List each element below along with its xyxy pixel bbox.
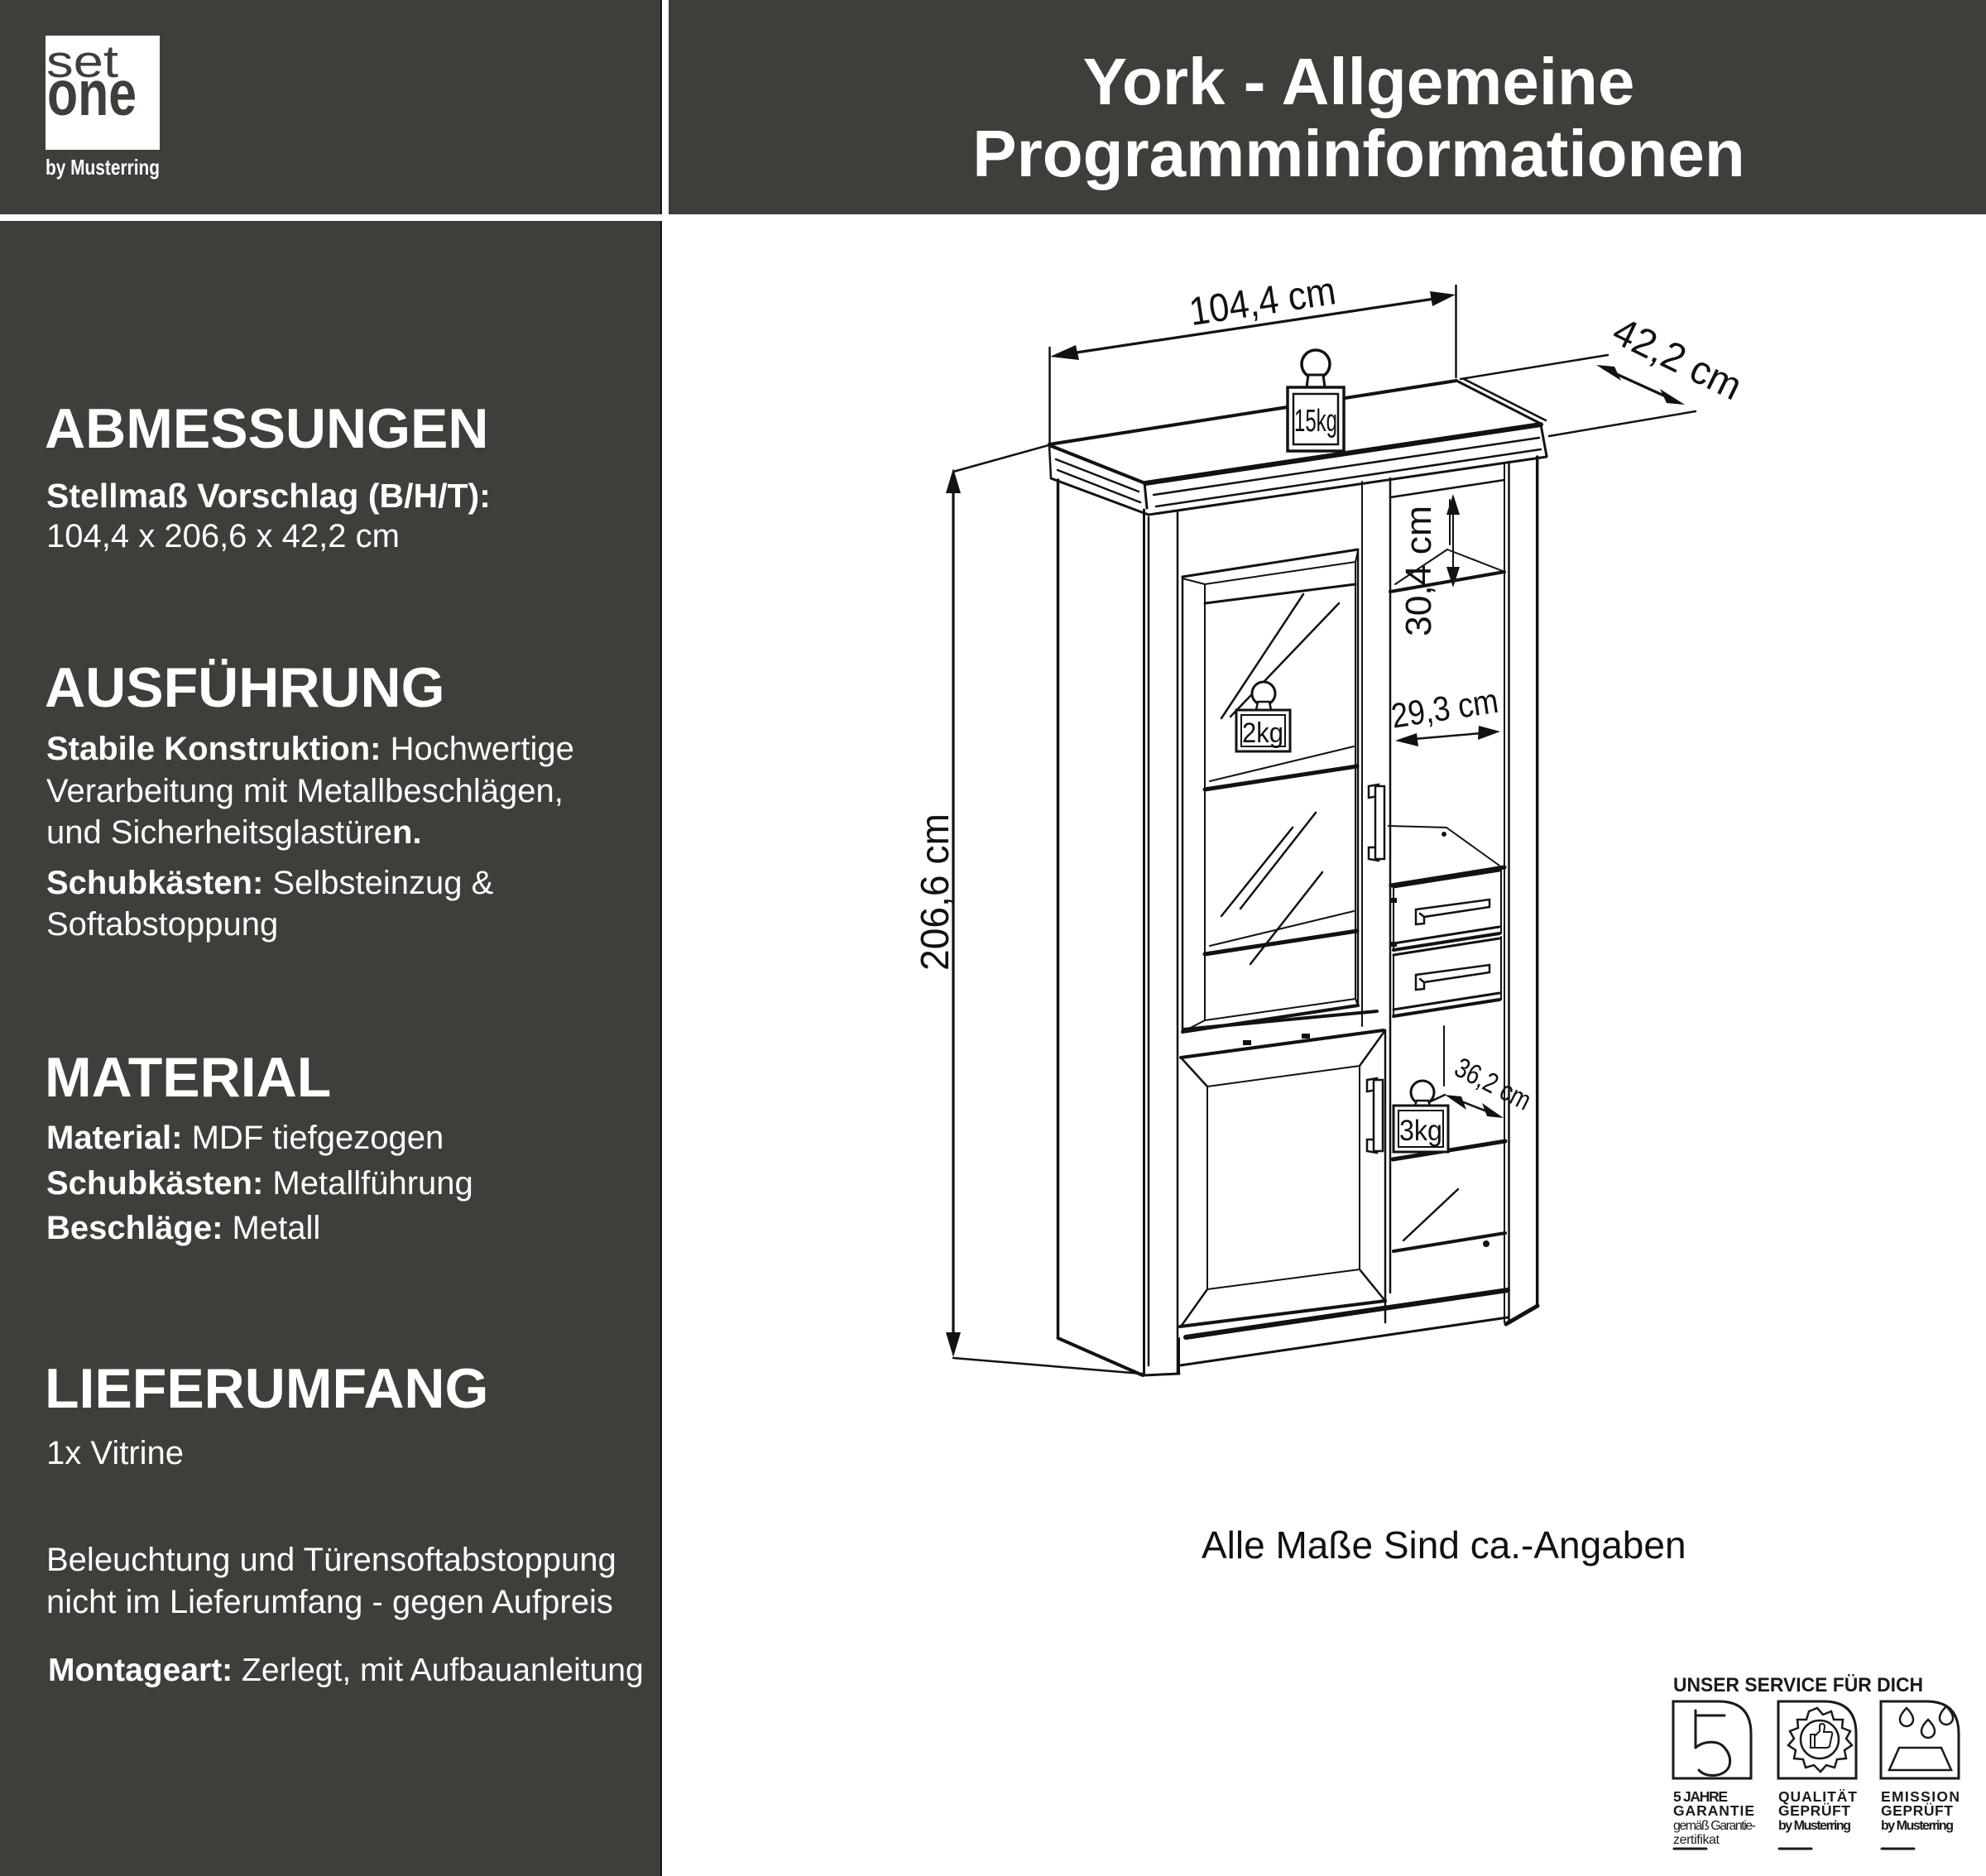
svg-text:30,4 cm: 30,4 cm [1398, 506, 1439, 636]
svg-text:GEPRÜFT: GEPRÜFT [1778, 1802, 1850, 1819]
svg-text:by Musterring: by Musterring [1881, 1819, 1954, 1833]
svg-text:zertifikat: zertifikat [1673, 1833, 1720, 1847]
svg-text:2kg: 2kg [1242, 717, 1283, 749]
svg-text:gemäß Garantie-: gemäß Garantie- [1673, 1819, 1756, 1833]
svg-text:UNSER SERVICE FÜR DICH: UNSER SERVICE FÜR DICH [1673, 1674, 1923, 1696]
svg-text:206,6 cm: 206,6 cm [914, 813, 957, 971]
svg-text:by Musterring: by Musterring [1778, 1819, 1851, 1833]
svg-text:42,2 cm: 42,2 cm [1606, 309, 1749, 409]
svg-text:15kg: 15kg [1294, 404, 1337, 439]
svg-text:GARANTIE: GARANTIE [1673, 1802, 1754, 1819]
svg-text:3kg: 3kg [1399, 1115, 1442, 1147]
svg-text:GEPRÜFT: GEPRÜFT [1881, 1802, 1953, 1819]
